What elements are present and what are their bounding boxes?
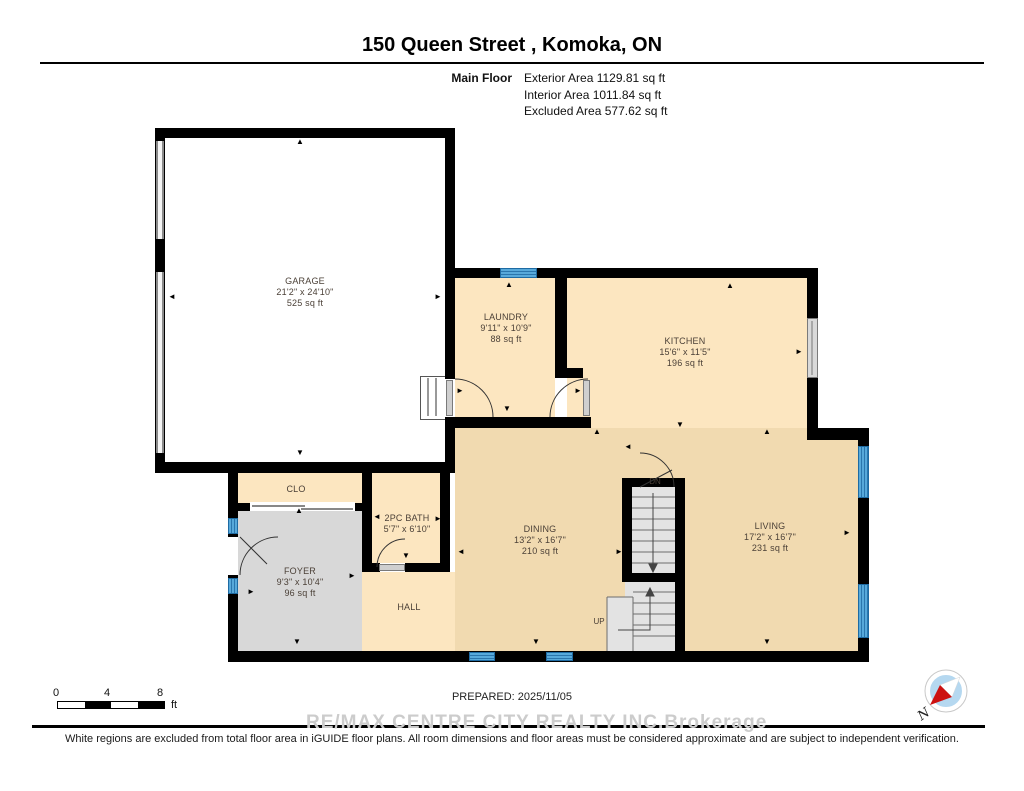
garage-overhead-door [156, 141, 164, 239]
room-label-foyer: FOYER 9'3" x 10'4" 96 sq ft [240, 566, 360, 599]
garage-door-leaf [446, 380, 453, 416]
page-title: 150 Queen Street , Komoka, ON [0, 34, 1024, 57]
floor-name-label: Main Floor [360, 71, 512, 85]
room-label-living: LIVING 17'2" x 16'7" 231 sq ft [710, 521, 830, 554]
dimension-arrow: ▼ [532, 638, 541, 647]
dimension-arrow: ▲ [505, 281, 514, 290]
stairs-down-floor [632, 487, 675, 573]
wall-segment [622, 478, 632, 582]
room-label-garage: GARAGE 21'2" x 24'10" 525 sq ft [245, 276, 365, 309]
excluded-area-stat: Excluded Area 577.62 sq ft [524, 104, 667, 118]
bath-door-leaf [379, 564, 405, 571]
wall-segment [622, 573, 685, 582]
title-divider [40, 62, 984, 64]
room-label-closet: CLO [236, 484, 356, 495]
dimension-arrow: ▼ [296, 449, 305, 458]
garage-steps [420, 376, 447, 420]
patio-sliding-door [807, 318, 818, 378]
dimension-arrow: ▼ [503, 405, 512, 414]
dimension-arrow: ◄ [168, 293, 177, 302]
window [500, 268, 537, 278]
room-label-dining: DINING 13'2" x 16'7" 210 sq ft [480, 524, 600, 557]
room-label-bath: 2PC BATH 5'7" x 6'10" [347, 513, 467, 535]
dimension-arrow: ▲ [763, 428, 772, 437]
dimension-arrow: ► [434, 293, 443, 302]
room-label-hall: HALL [349, 602, 469, 613]
window [469, 652, 495, 661]
compass-north-label: N [916, 705, 934, 724]
dimension-arrow: ▼ [763, 638, 772, 647]
dimension-arrow: ▲ [296, 138, 305, 147]
exterior-area-stat: Exterior Area 1129.81 sq ft [524, 71, 665, 85]
stairs-down-label: DN [640, 477, 670, 486]
dimension-arrow: ▲ [726, 282, 735, 291]
dimension-arrow: ▲ [295, 507, 304, 516]
disclaimer-text: White regions are excluded from total fl… [0, 733, 1024, 745]
dimension-arrow: ► [574, 387, 583, 396]
window [228, 518, 238, 534]
dimension-arrow: ► [456, 387, 465, 396]
dimension-arrow: ◄ [624, 443, 633, 452]
floor-plan-page: 150 Queen Street , Komoka, ON Main Floor… [0, 0, 1024, 791]
interior-area-stat: Interior Area 1011.84 sq ft [524, 88, 661, 102]
window [546, 652, 573, 661]
room-label-kitchen: KITCHEN 15'6" x 11'5" 196 sq ft [625, 336, 745, 369]
wall-segment [155, 462, 455, 473]
dimension-arrow: ▼ [402, 552, 411, 561]
window [228, 578, 238, 594]
room-label-laundry: LAUNDRY 9'11" x 10'9" 88 sq ft [446, 312, 566, 345]
compass-icon: N [916, 664, 976, 724]
dimension-arrow: ▼ [293, 638, 302, 647]
stairs-up-label: UP [584, 617, 614, 626]
laundry-floor [455, 278, 555, 417]
garage-overhead-door [156, 272, 164, 453]
dimension-arrow: ▼ [676, 421, 685, 430]
wall-segment [405, 563, 450, 572]
wall-segment [675, 478, 685, 660]
wall-segment [445, 417, 591, 428]
window [858, 584, 869, 638]
dimension-arrow: ► [615, 548, 624, 557]
brokerage-watermark: RE/MAX CENTRE CITY REALTY INC. Brokerage [306, 712, 714, 734]
dimension-arrow: ► [843, 529, 852, 538]
wall-segment [362, 563, 380, 572]
wall-segment [155, 128, 455, 138]
dimension-arrow: ► [795, 348, 804, 357]
dimension-arrow: ▲ [593, 428, 602, 437]
door-opening [228, 537, 238, 575]
window [858, 446, 869, 498]
wall-segment [555, 368, 583, 378]
laundry-door-leaf [583, 380, 590, 416]
prepared-date: PREPARED: 2025/11/05 [0, 691, 1024, 703]
dimension-arrow: ◄ [457, 548, 466, 557]
